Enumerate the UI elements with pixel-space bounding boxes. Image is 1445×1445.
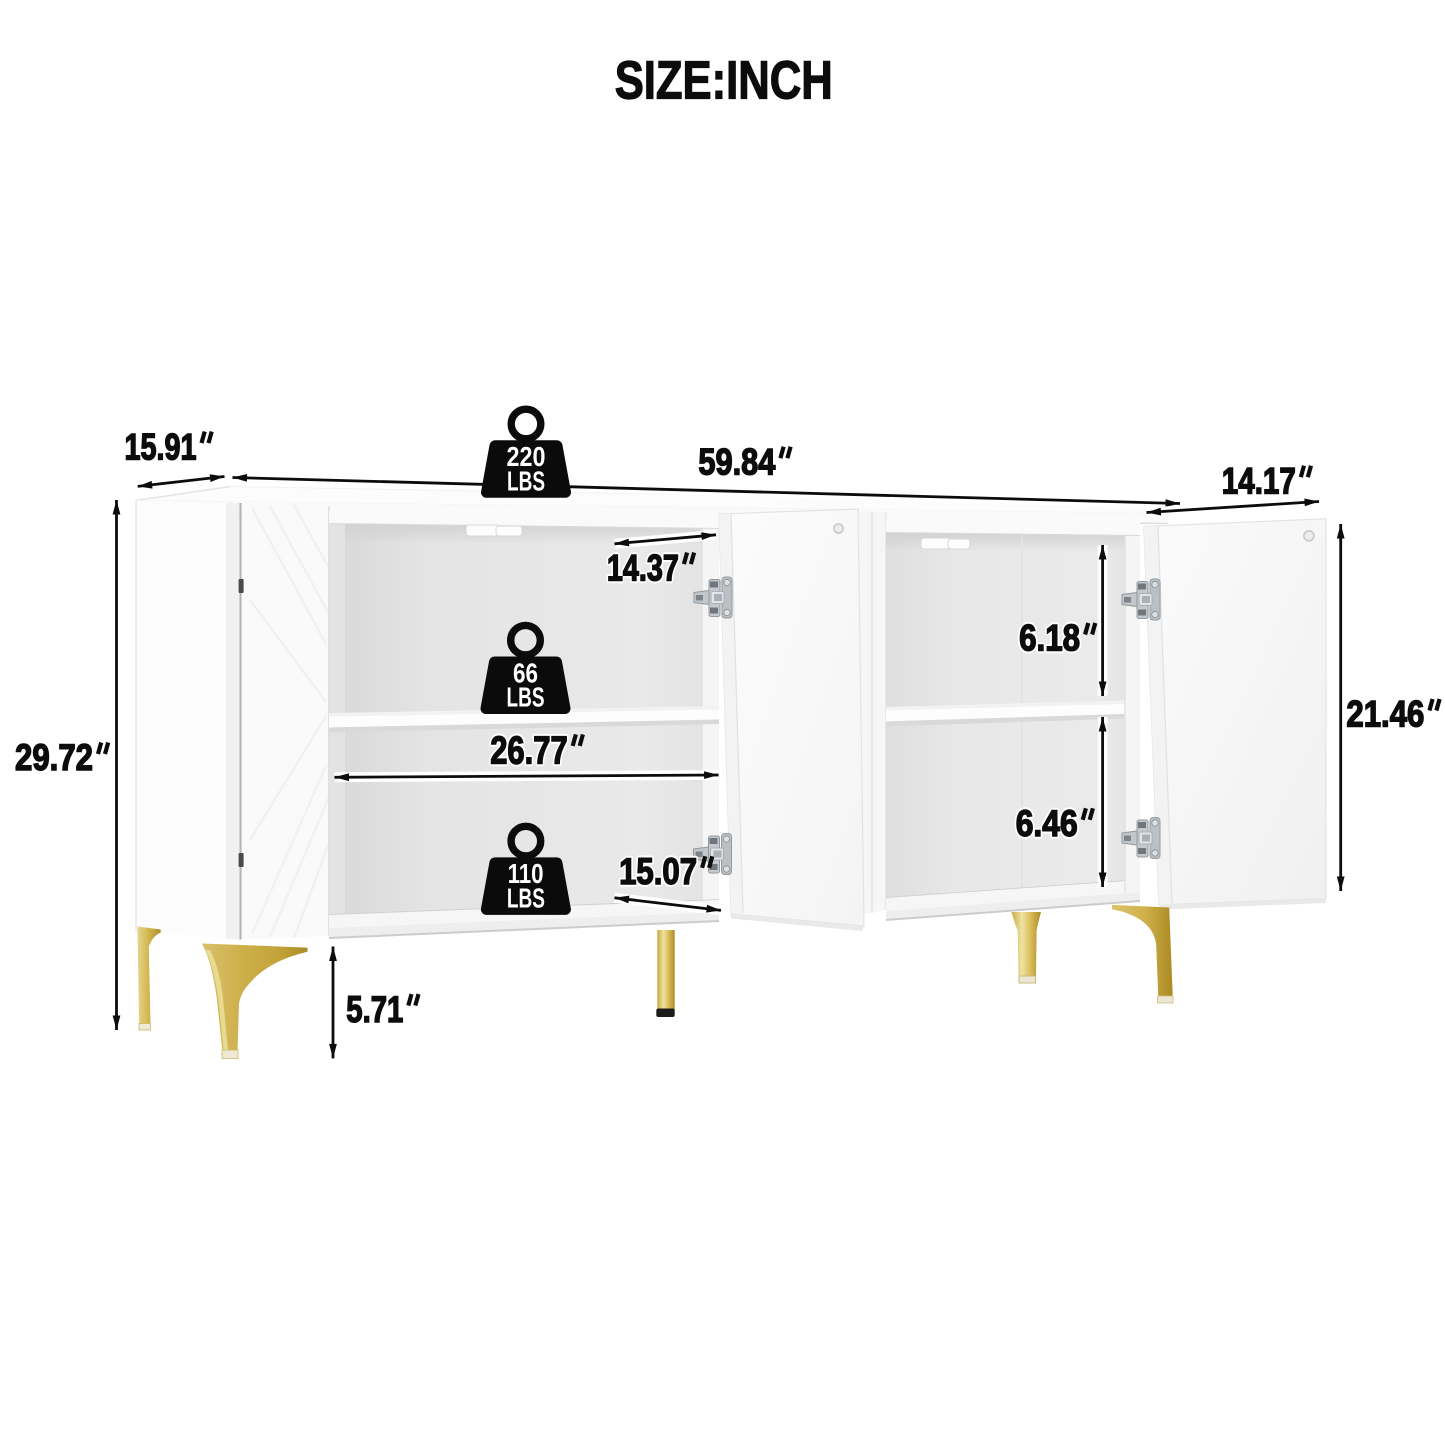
svg-text:LBS: LBS xyxy=(507,465,545,496)
svg-text:SIZE:INCH: SIZE:INCH xyxy=(615,51,833,111)
svg-text:14.37: 14.37 xyxy=(607,547,679,588)
svg-text:LBS: LBS xyxy=(507,882,545,913)
svg-text:15.07: 15.07 xyxy=(619,851,697,892)
svg-text:15.91: 15.91 xyxy=(125,426,197,467)
svg-text:6.46: 6.46 xyxy=(1016,803,1078,844)
svg-text:21.46: 21.46 xyxy=(1346,694,1424,735)
svg-text:59.84: 59.84 xyxy=(698,441,775,482)
svg-text:14.17: 14.17 xyxy=(1222,460,1296,501)
svg-text:5.71: 5.71 xyxy=(346,989,403,1030)
svg-text:26.77: 26.77 xyxy=(490,730,568,773)
svg-text:29.72: 29.72 xyxy=(15,737,93,778)
svg-text:LBS: LBS xyxy=(507,682,545,713)
svg-text:6.18: 6.18 xyxy=(1019,618,1080,659)
